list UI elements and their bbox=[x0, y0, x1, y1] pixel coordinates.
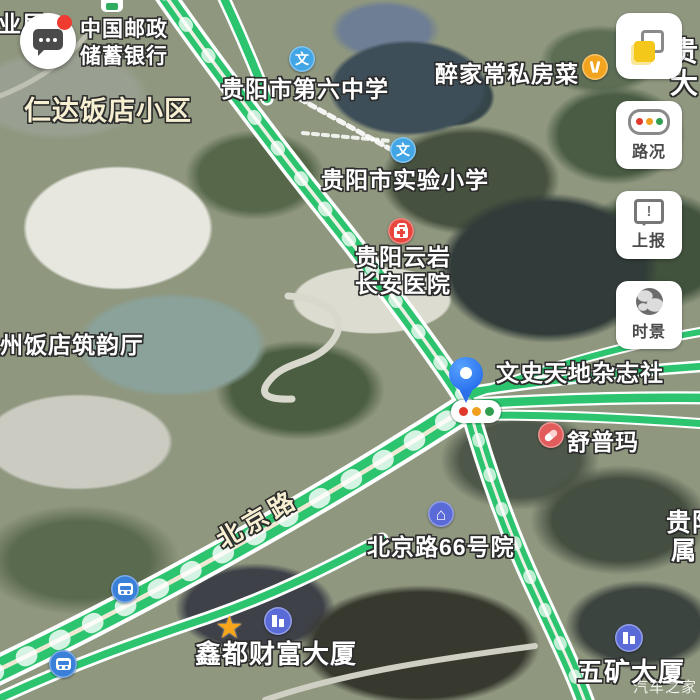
poi-label-renda-compound[interactable]: 仁达饭店小区 bbox=[24, 89, 192, 128]
traffic-button[interactable]: 路况 bbox=[616, 101, 682, 169]
location-pin[interactable] bbox=[449, 357, 483, 408]
building-icon[interactable] bbox=[615, 624, 643, 652]
medical-bag-glyph bbox=[394, 227, 408, 238]
fork-knife-glyph bbox=[588, 60, 602, 74]
courtyard-icon[interactable]: ⌂ bbox=[428, 501, 454, 527]
message-fab[interactable] bbox=[20, 13, 76, 69]
report-icon: ! bbox=[634, 199, 664, 224]
poi-label-restaurant[interactable]: 醉家常私房菜 bbox=[435, 55, 579, 89]
pharmacy-icon[interactable] bbox=[538, 422, 564, 448]
capsule-glyph bbox=[543, 428, 558, 442]
poi-label-hospital[interactable]: 贵阳云岩 长安医院 bbox=[347, 244, 459, 298]
cut-poi-icon bbox=[101, 0, 123, 12]
poi-label-shupuma[interactable]: 舒普玛 bbox=[567, 423, 639, 457]
watermark: 汽车之家 bbox=[633, 676, 697, 697]
layers-icon bbox=[632, 29, 666, 63]
scene-button[interactable]: 时景 bbox=[616, 281, 682, 349]
poi-label-post-bank[interactable]: 中国邮政 储蓄银行 bbox=[80, 16, 168, 70]
bus-stop-icon[interactable] bbox=[49, 650, 77, 678]
globe-icon bbox=[636, 288, 663, 315]
traffic-lights-icon bbox=[628, 109, 670, 135]
poi-label-edge-right[interactable]: 贵阳 属 bbox=[666, 509, 700, 565]
map-app: { "watermark": "汽车之家", "labels": { "bure… bbox=[0, 0, 700, 700]
layers-button[interactable] bbox=[616, 13, 682, 79]
poi-label-courtyard66[interactable]: 北京路66号院 bbox=[367, 528, 515, 562]
road-internal-s-curve bbox=[265, 296, 339, 399]
poi-label-xindu-tower[interactable]: 鑫都财富大厦 bbox=[195, 634, 357, 671]
poi-label-hotel-hall[interactable]: 州饭店筑韵厅 bbox=[0, 326, 144, 360]
school-icon[interactable]: 文 bbox=[289, 46, 315, 72]
hospital-icon[interactable] bbox=[388, 218, 414, 244]
report-button[interactable]: ! 上报 bbox=[616, 191, 682, 259]
building-glyph bbox=[622, 632, 636, 644]
poi-label-no6-middle-school[interactable]: 贵阳市第六中学 bbox=[221, 70, 389, 104]
chat-bubble-icon bbox=[33, 29, 63, 50]
restaurant-icon[interactable] bbox=[582, 54, 608, 80]
bus-glyph bbox=[118, 583, 133, 595]
school-icon[interactable]: 文 bbox=[390, 137, 416, 163]
building-icon[interactable] bbox=[264, 607, 292, 635]
house-glyph: ⌂ bbox=[436, 506, 446, 523]
bus-glyph bbox=[56, 658, 71, 670]
poi-label-experimental-primary[interactable]: 贵阳市实验小学 bbox=[321, 161, 489, 195]
notification-badge bbox=[57, 15, 72, 30]
poi-label-magazine[interactable]: 文史天地杂志社 bbox=[496, 354, 664, 388]
bus-stop-icon[interactable] bbox=[111, 575, 139, 603]
building-glyph bbox=[271, 615, 285, 627]
